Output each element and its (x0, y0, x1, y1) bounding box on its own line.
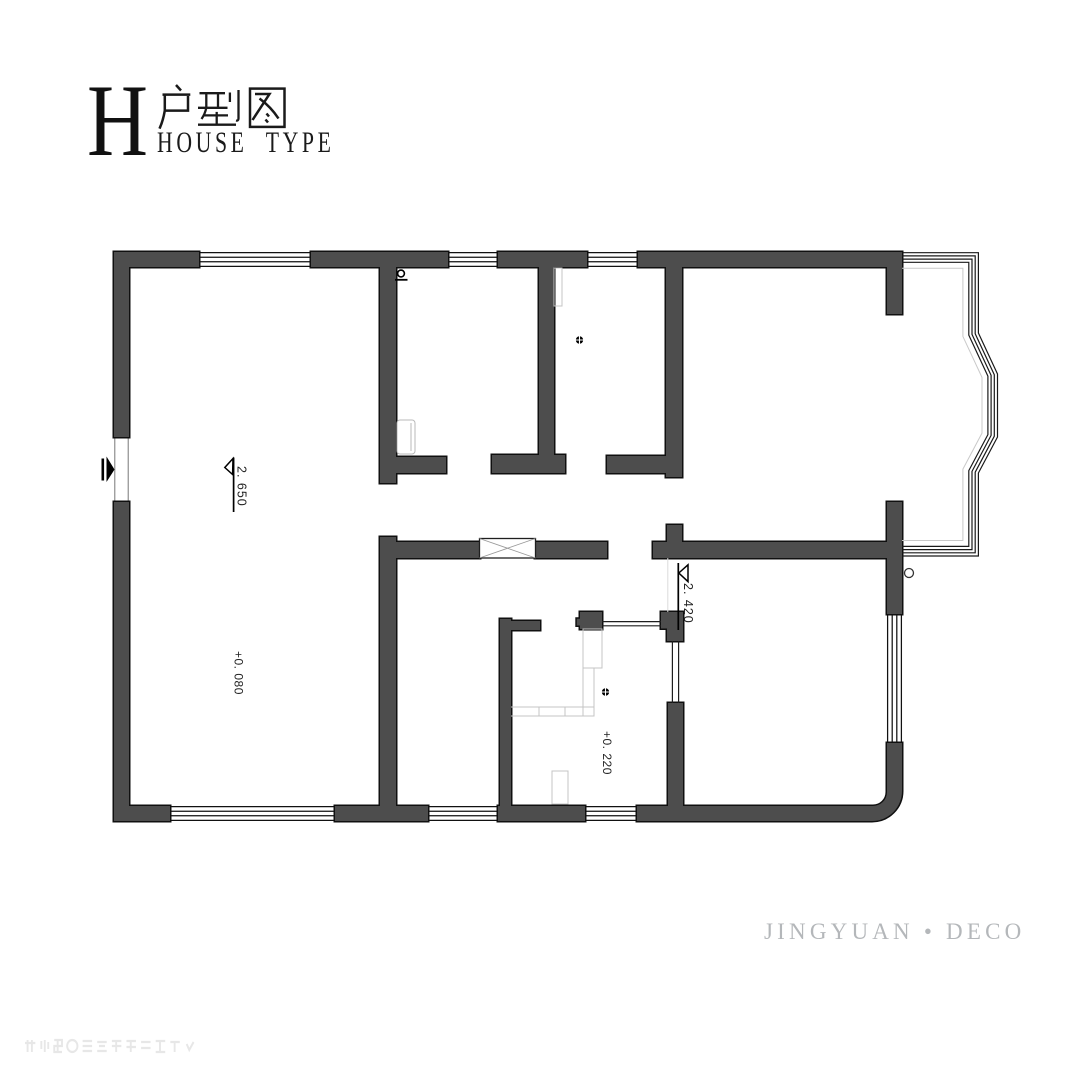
svg-text:JINGYUAN • DECO: JINGYUAN • DECO (764, 919, 1025, 944)
svg-text:+0. 220: +0. 220 (600, 731, 614, 775)
svg-text:2. 420: 2. 420 (681, 583, 695, 624)
svg-text:HOUSE TYPE: HOUSE TYPE (157, 126, 335, 159)
svg-text:2. 650: 2. 650 (235, 466, 249, 507)
svg-text:H: H (87, 64, 148, 178)
svg-text:+0. 080: +0. 080 (232, 651, 246, 695)
